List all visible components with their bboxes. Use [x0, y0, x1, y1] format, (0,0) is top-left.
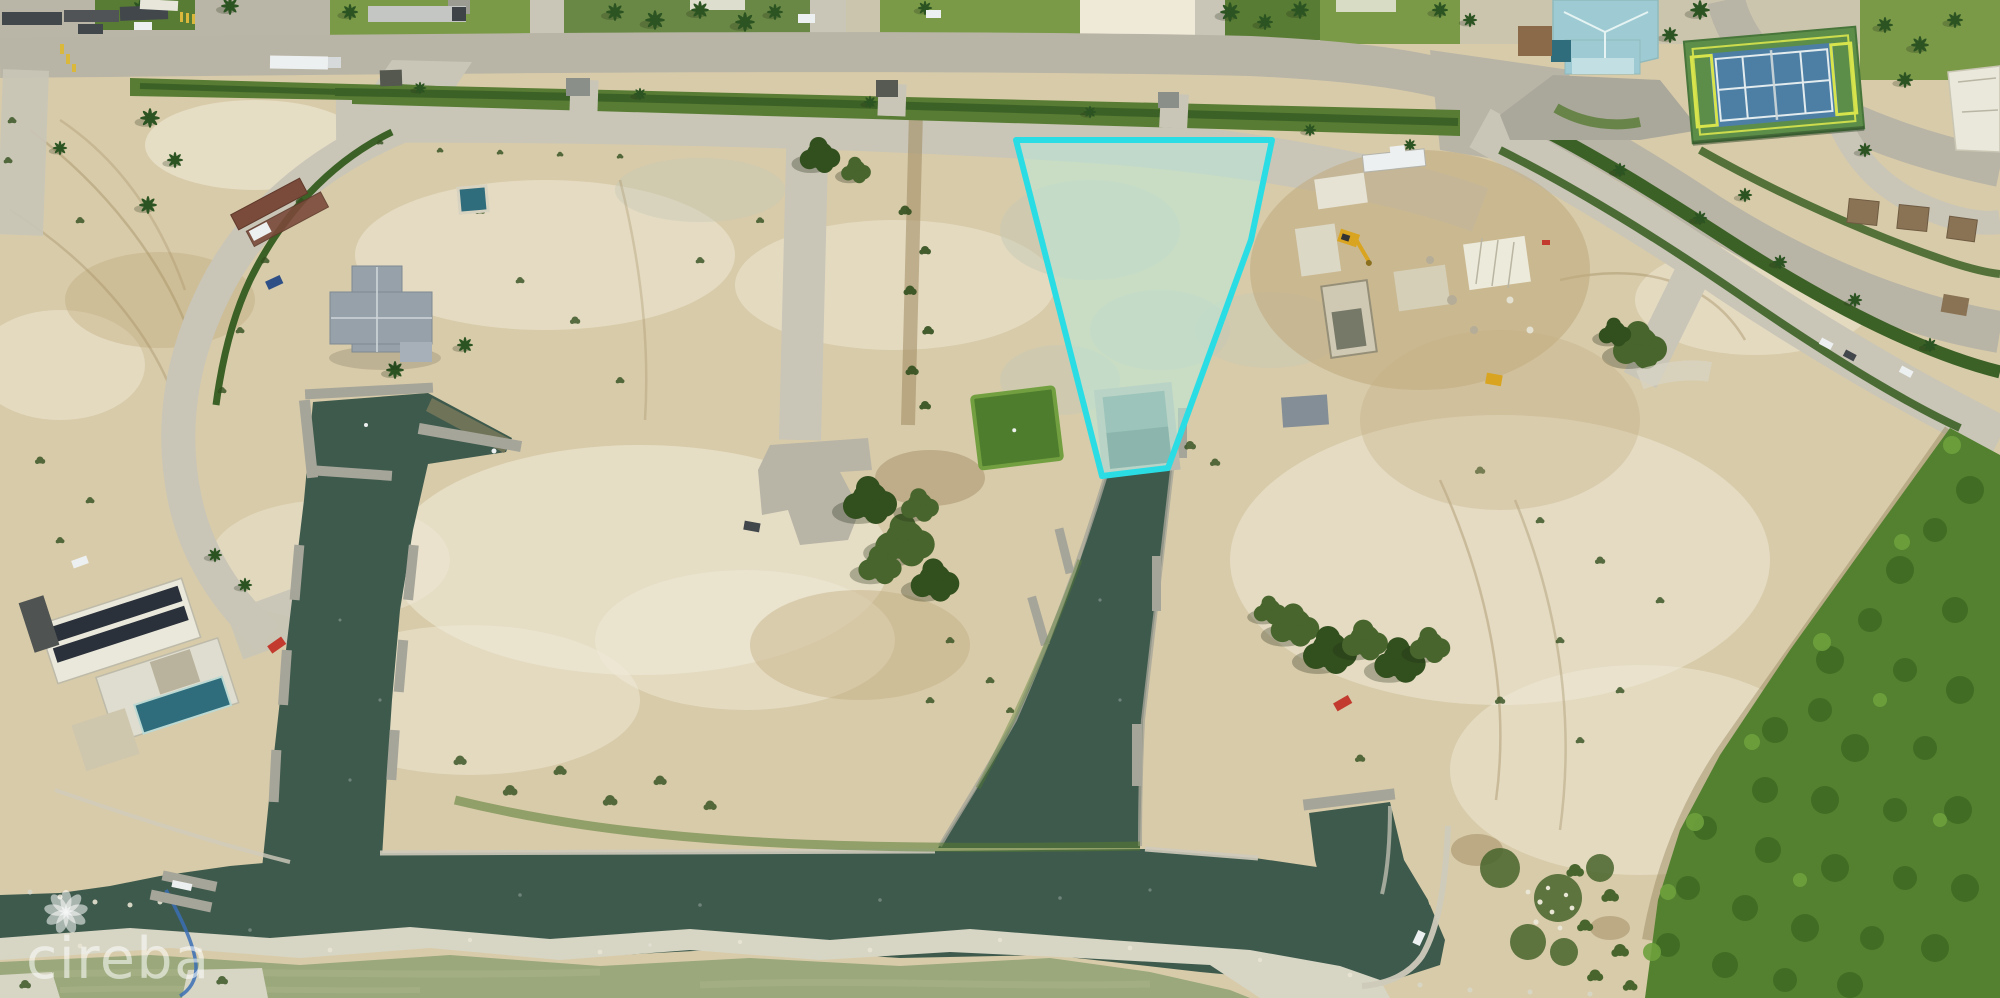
- foundation-slab-gridded: [1463, 236, 1531, 290]
- pickup: [926, 10, 941, 18]
- pool-excavation: [1321, 280, 1377, 358]
- gatehouse: [380, 70, 403, 87]
- box-truck-on-road: [270, 55, 341, 69]
- west-side-street: [20, 70, 26, 235]
- gravel-trail: [908, 112, 916, 425]
- white-roof-house: [1948, 66, 2000, 152]
- putting-green: [972, 387, 1062, 468]
- flatbed-truck: [368, 6, 466, 22]
- tennis-court: [1684, 27, 1864, 144]
- house-roof-sliver: [1336, 0, 1396, 12]
- foundation-slab: [1295, 223, 1341, 276]
- dock: [1132, 724, 1142, 786]
- mansion-pool: [1551, 40, 1571, 62]
- car: [134, 22, 152, 30]
- dock: [1152, 556, 1161, 611]
- car: [1390, 145, 1406, 156]
- pergola-deck: [1518, 26, 1552, 56]
- car: [78, 24, 103, 34]
- boathouse-shed: [1281, 394, 1329, 427]
- median-pavilion: [1158, 92, 1179, 108]
- small-pool: [458, 186, 488, 213]
- median-pavilion: [876, 80, 898, 97]
- foundation-slab: [1393, 265, 1450, 312]
- van: [798, 14, 815, 23]
- parked-truck: [64, 10, 119, 22]
- parked-truck: [2, 12, 62, 25]
- median-pavilion: [566, 78, 590, 96]
- red-equipment: [1542, 240, 1550, 245]
- aerial-photo-canvas: cireba: [0, 0, 2000, 998]
- watermark-text: cireba: [26, 926, 211, 992]
- clubhouse-porch: [400, 342, 432, 362]
